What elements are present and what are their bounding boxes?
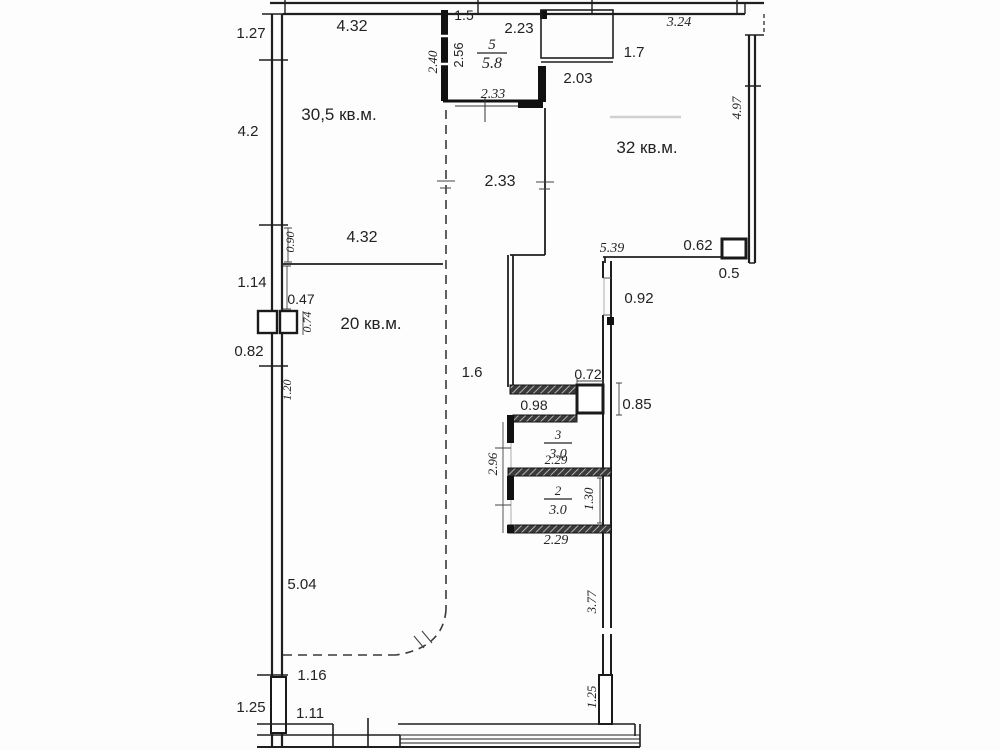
- dim-2-03: 2.03: [563, 70, 592, 87]
- room5-tag-area: 5.8: [482, 55, 502, 72]
- vent-shaft-box: [577, 385, 603, 413]
- dim-2-40: 2.40: [425, 50, 440, 73]
- dim-4-32-top: 4.32: [336, 18, 367, 35]
- right-shaft-box: [722, 239, 746, 258]
- dim-1-5: 1.5: [454, 7, 474, 23]
- right-pilaster: [599, 675, 612, 724]
- left-wall-column-a: [258, 311, 277, 333]
- dim-1-20: 1.20: [280, 380, 294, 401]
- dim-0-62: 0.62: [683, 237, 712, 254]
- dim-1-30: 1.30: [581, 487, 596, 510]
- dim-2-96: 2.96: [485, 452, 500, 475]
- dim-1-25-right: 1.25: [584, 685, 599, 708]
- dim-0-47: 0.47: [287, 291, 314, 307]
- dim-0-72: 0.72: [574, 366, 601, 382]
- dim-2-33-room5: 2.33: [481, 87, 506, 102]
- dim-0-98: 0.98: [520, 397, 547, 413]
- dim-2-33-mid: 2.33: [484, 173, 515, 190]
- dim-3-24: 3.24: [666, 15, 692, 30]
- room3-tag-number: 3: [554, 427, 562, 442]
- dim-0-92: 0.92: [624, 290, 653, 307]
- door-frame-mark: [607, 317, 614, 325]
- left-wall-column-b: [280, 311, 297, 333]
- dim-4-97: 4.97: [729, 96, 744, 119]
- floor-plan-drawing: 1.274.321.52.233.241.72.032.3330,5 кв.м.…: [0, 0, 1000, 750]
- room2-tag: 23.0: [544, 483, 572, 518]
- dim-1-27: 1.27: [236, 25, 265, 42]
- dim-2-29-room2: 2.29: [544, 533, 569, 548]
- dim-1-16: 1.16: [297, 667, 326, 684]
- dim-5-39: 5.39: [600, 241, 625, 256]
- dim-4-2: 4.2: [238, 123, 259, 140]
- dim-0-82: 0.82: [234, 343, 263, 360]
- dimension-marks: [283, 117, 681, 648]
- room2-tag-area: 3.0: [548, 503, 567, 518]
- dim-0-85: 0.85: [622, 396, 651, 413]
- dim-4-32-mid: 4.32: [346, 229, 377, 246]
- dim-3-77: 3.77: [584, 590, 599, 614]
- dim-0-90: 0.90: [283, 232, 297, 253]
- room5-tag: 55.8: [477, 37, 507, 72]
- room3-tag-area: 3.0: [548, 447, 567, 462]
- bottom-wall: [257, 718, 640, 748]
- dim-1-11: 1.11: [296, 705, 324, 722]
- room-area-20: 20 кв.м.: [340, 314, 401, 333]
- window-band: [400, 735, 640, 743]
- fixtures: [258, 239, 746, 733]
- room2-tag-number: 2: [555, 483, 562, 498]
- dim-1-6: 1.6: [462, 364, 483, 381]
- room-area-30-5: 30,5 кв.м.: [301, 105, 376, 124]
- dim-1-7: 1.7: [624, 44, 645, 61]
- dimension-labels: 1.274.321.52.233.241.72.032.3330,5 кв.м.…: [234, 7, 744, 722]
- dim-0-5: 0.5: [719, 265, 740, 282]
- balcony: [541, 10, 613, 62]
- dim-2-23: 2.23: [504, 20, 533, 37]
- dim-2-56: 2.56: [451, 42, 466, 67]
- dim-1-14: 1.14: [237, 274, 266, 291]
- room5-tag-number: 5: [488, 37, 496, 53]
- dim-0-74: 0.74: [300, 312, 314, 333]
- dim-1-25-left: 1.25: [236, 699, 265, 716]
- floor-plan-page: 1.274.321.52.233.241.72.032.3330,5 кв.м.…: [0, 0, 1000, 750]
- bathroom-walls: [507, 317, 614, 533]
- room-area-32: 32 кв.м.: [616, 138, 677, 157]
- dim-5-04: 5.04: [287, 576, 316, 593]
